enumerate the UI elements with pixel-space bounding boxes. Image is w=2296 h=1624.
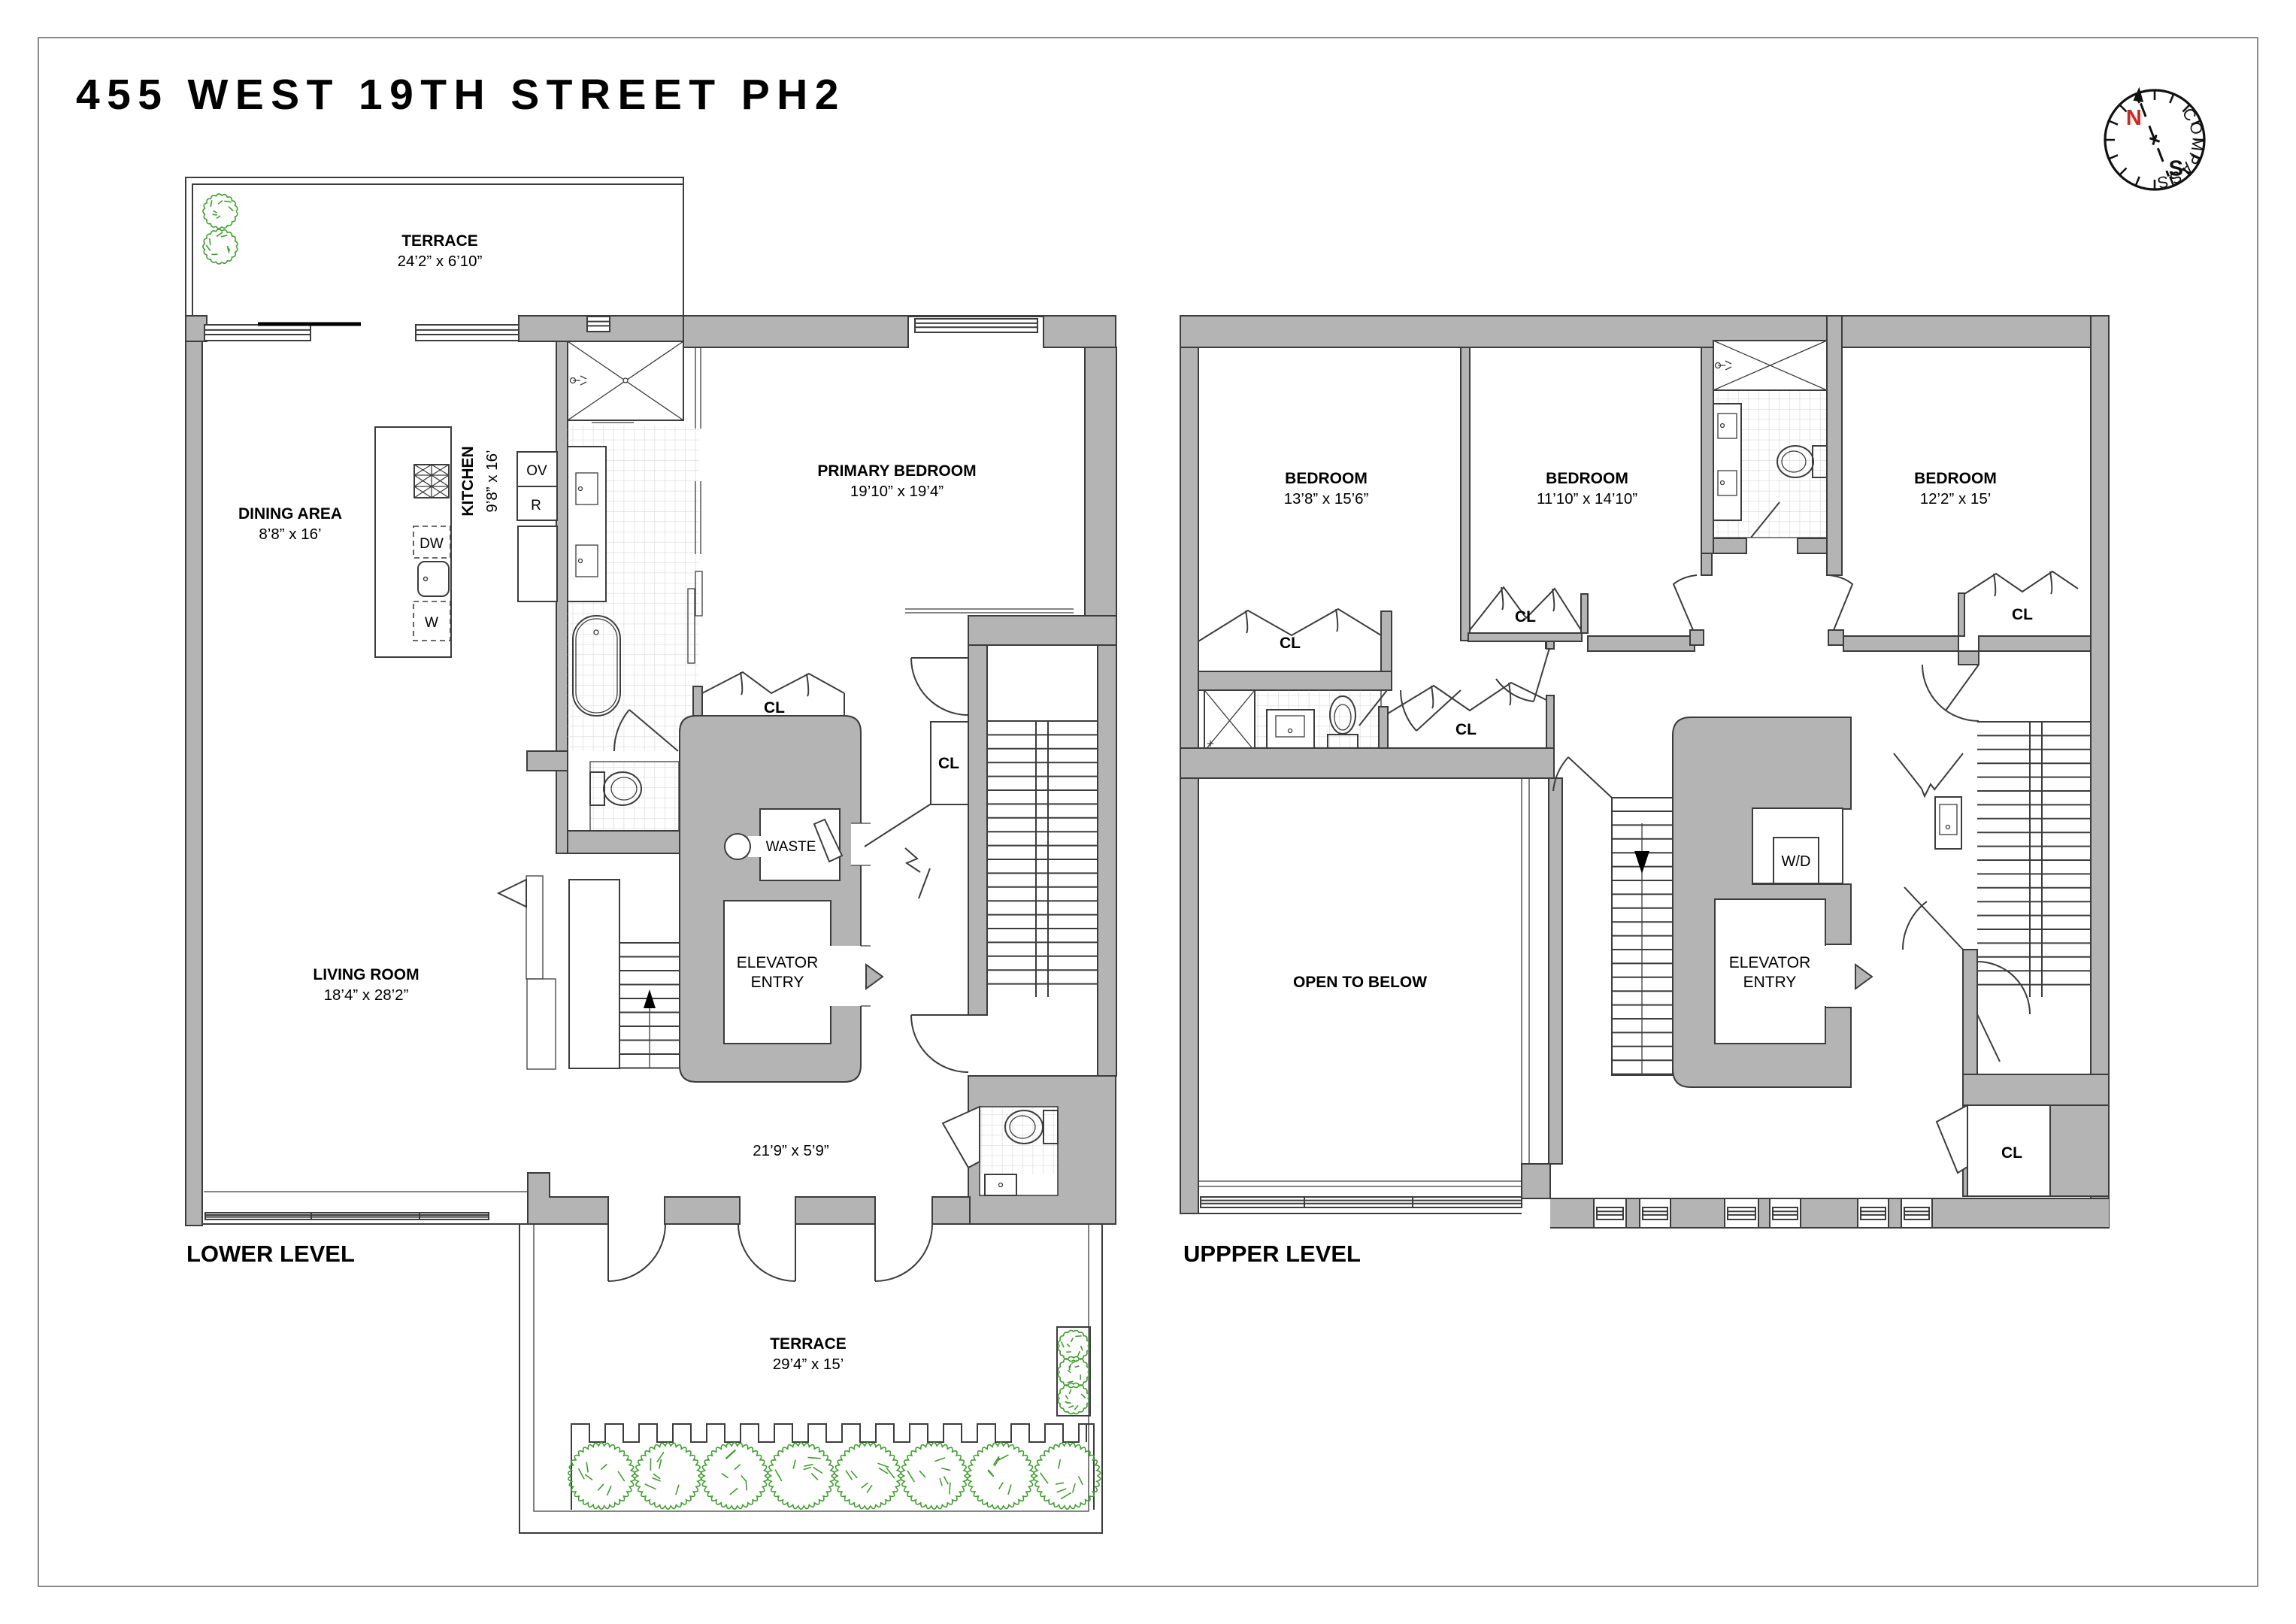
svg-text:KITCHEN: KITCHEN	[459, 446, 477, 516]
svg-text:455 WEST 19TH STREET PH2: 455 WEST 19TH STREET PH2	[76, 71, 846, 119]
svg-text:CL: CL	[1515, 608, 1536, 626]
svg-text:OV: OV	[526, 463, 547, 479]
svg-text:PRIMARY BEDROOM: PRIMARY BEDROOM	[817, 462, 976, 480]
svg-text:8’8” x 16’: 8’8” x 16’	[259, 526, 321, 543]
svg-text:18’4” x 28’2”: 18’4” x 28’2”	[324, 986, 409, 1004]
svg-text:W/D: W/D	[1782, 853, 1811, 870]
svg-text:BEDROOM: BEDROOM	[1546, 470, 1628, 487]
svg-text:UPPPER LEVEL: UPPPER LEVEL	[1183, 1241, 1361, 1267]
svg-text:W: W	[425, 615, 438, 631]
svg-text:ELEVATOR: ELEVATOR	[1729, 954, 1811, 971]
svg-text:OPEN TO BELOW: OPEN TO BELOW	[1293, 974, 1427, 991]
svg-text:ENTRY: ENTRY	[1743, 974, 1797, 991]
svg-text:ELEVATOR: ELEVATOR	[737, 954, 819, 971]
svg-text:9’8” x 16’: 9’8” x 16’	[483, 450, 501, 512]
svg-text:12’2” x 15’: 12’2” x 15’	[1920, 490, 1992, 507]
svg-text:21’9” x 5’9”: 21’9” x 5’9”	[753, 1142, 829, 1159]
svg-text:CL: CL	[938, 755, 959, 772]
svg-text:24’2” x 6’10”: 24’2” x 6’10”	[398, 253, 483, 270]
svg-text:WASTE: WASTE	[766, 839, 816, 855]
svg-text:DINING AREA: DINING AREA	[238, 505, 342, 523]
svg-text:ENTRY: ENTRY	[751, 974, 804, 991]
svg-text:TERRACE: TERRACE	[770, 1335, 847, 1353]
svg-text:29’4” x 15’: 29’4” x 15’	[773, 1356, 844, 1373]
svg-text:13’8” x 15’6”: 13’8” x 15’6”	[1284, 490, 1369, 507]
svg-text:CL: CL	[2001, 1144, 2022, 1162]
svg-text:DW: DW	[420, 536, 444, 552]
svg-text:TERRACE: TERRACE	[401, 232, 478, 250]
svg-text:CL: CL	[1455, 721, 1477, 738]
svg-text:N: N	[2126, 106, 2142, 130]
svg-text:CL: CL	[2012, 606, 2033, 623]
svg-text:19’10” x 19’4”: 19’10” x 19’4”	[850, 483, 944, 500]
svg-text:BEDROOM: BEDROOM	[1285, 470, 1368, 487]
svg-text:BEDROOM: BEDROOM	[1914, 470, 1997, 487]
svg-text:LIVING ROOM: LIVING ROOM	[313, 966, 419, 983]
svg-text:LOWER LEVEL: LOWER LEVEL	[186, 1241, 355, 1267]
svg-text:CL: CL	[764, 699, 785, 717]
svg-text:CL: CL	[1280, 635, 1301, 652]
svg-text:11’10” x 14’10”: 11’10” x 14’10”	[1537, 490, 1637, 507]
svg-text:R: R	[531, 498, 541, 514]
